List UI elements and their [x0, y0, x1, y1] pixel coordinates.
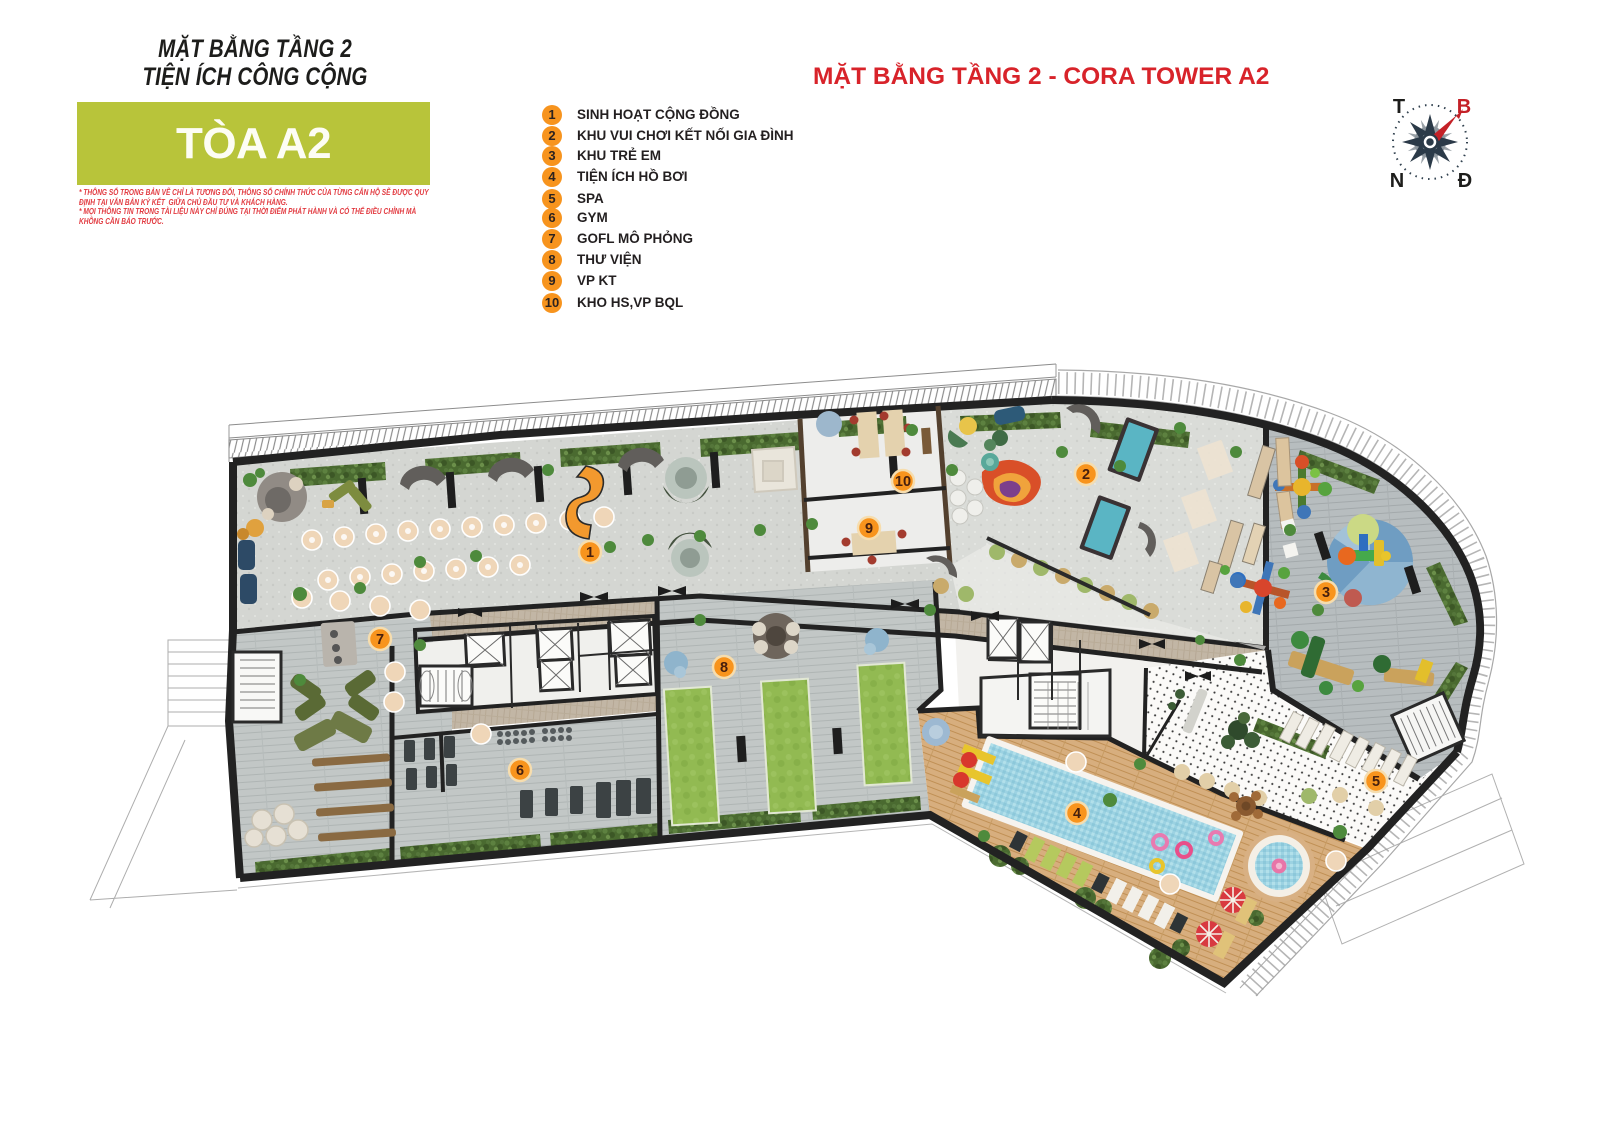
svg-text:Đ: Đ	[1458, 170, 1472, 192]
svg-text:7: 7	[376, 632, 384, 648]
svg-text:3: 3	[1322, 585, 1330, 601]
svg-text:N: N	[1390, 170, 1404, 192]
svg-text:2: 2	[1082, 467, 1090, 483]
svg-text:T: T	[1393, 96, 1405, 118]
svg-text:6: 6	[516, 763, 524, 779]
svg-text:9: 9	[865, 521, 873, 537]
svg-text:1: 1	[586, 545, 594, 561]
svg-text:4: 4	[1073, 806, 1081, 822]
svg-text:8: 8	[720, 660, 728, 676]
svg-text:10: 10	[895, 474, 911, 490]
svg-text:B: B	[1457, 96, 1471, 118]
svg-text:5: 5	[1372, 774, 1380, 790]
